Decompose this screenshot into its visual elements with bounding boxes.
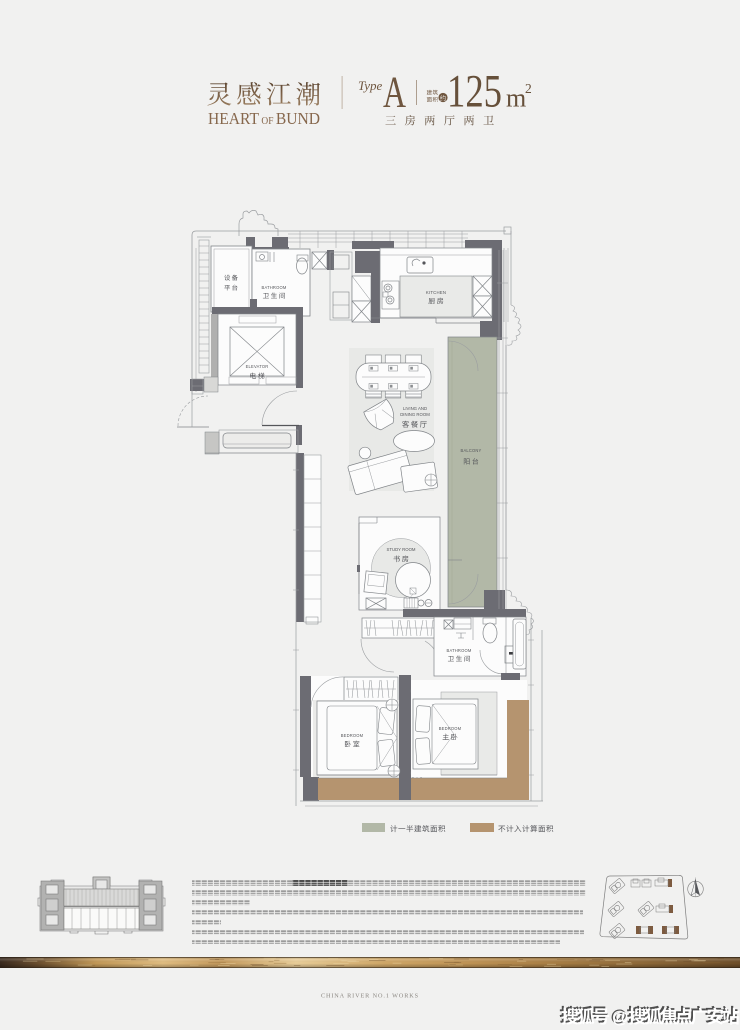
svg-text:BALCONY: BALCONY <box>461 448 482 453</box>
svg-text:STUDY ROOM: STUDY ROOM <box>386 547 415 552</box>
svg-text:BATHROOM: BATHROOM <box>447 648 472 653</box>
svg-text:@: @ <box>612 1008 628 1027</box>
svg-text:A: A <box>383 68 406 117</box>
svg-text:CHINA RIVER NO.1 WORKS: CHINA RIVER NO.1 WORKS <box>321 993 419 1000</box>
svg-text:m: m <box>506 84 526 113</box>
svg-text:125: 125 <box>447 66 502 118</box>
svg-text:2: 2 <box>525 81 532 96</box>
svg-text:KITCHEN: KITCHEN <box>426 290 446 295</box>
svg-text:Type: Type <box>358 78 383 93</box>
svg-text:BEDROOM: BEDROOM <box>439 726 462 731</box>
svg-text:BATHROOM: BATHROOM <box>262 285 287 290</box>
svg-text:ELEVATOR: ELEVATOR <box>246 364 269 369</box>
svg-text:BEDROOM: BEDROOM <box>341 733 364 738</box>
svg-text:DINING ROOM: DINING ROOM <box>400 412 430 417</box>
svg-text:LIVING AND: LIVING AND <box>403 406 427 411</box>
